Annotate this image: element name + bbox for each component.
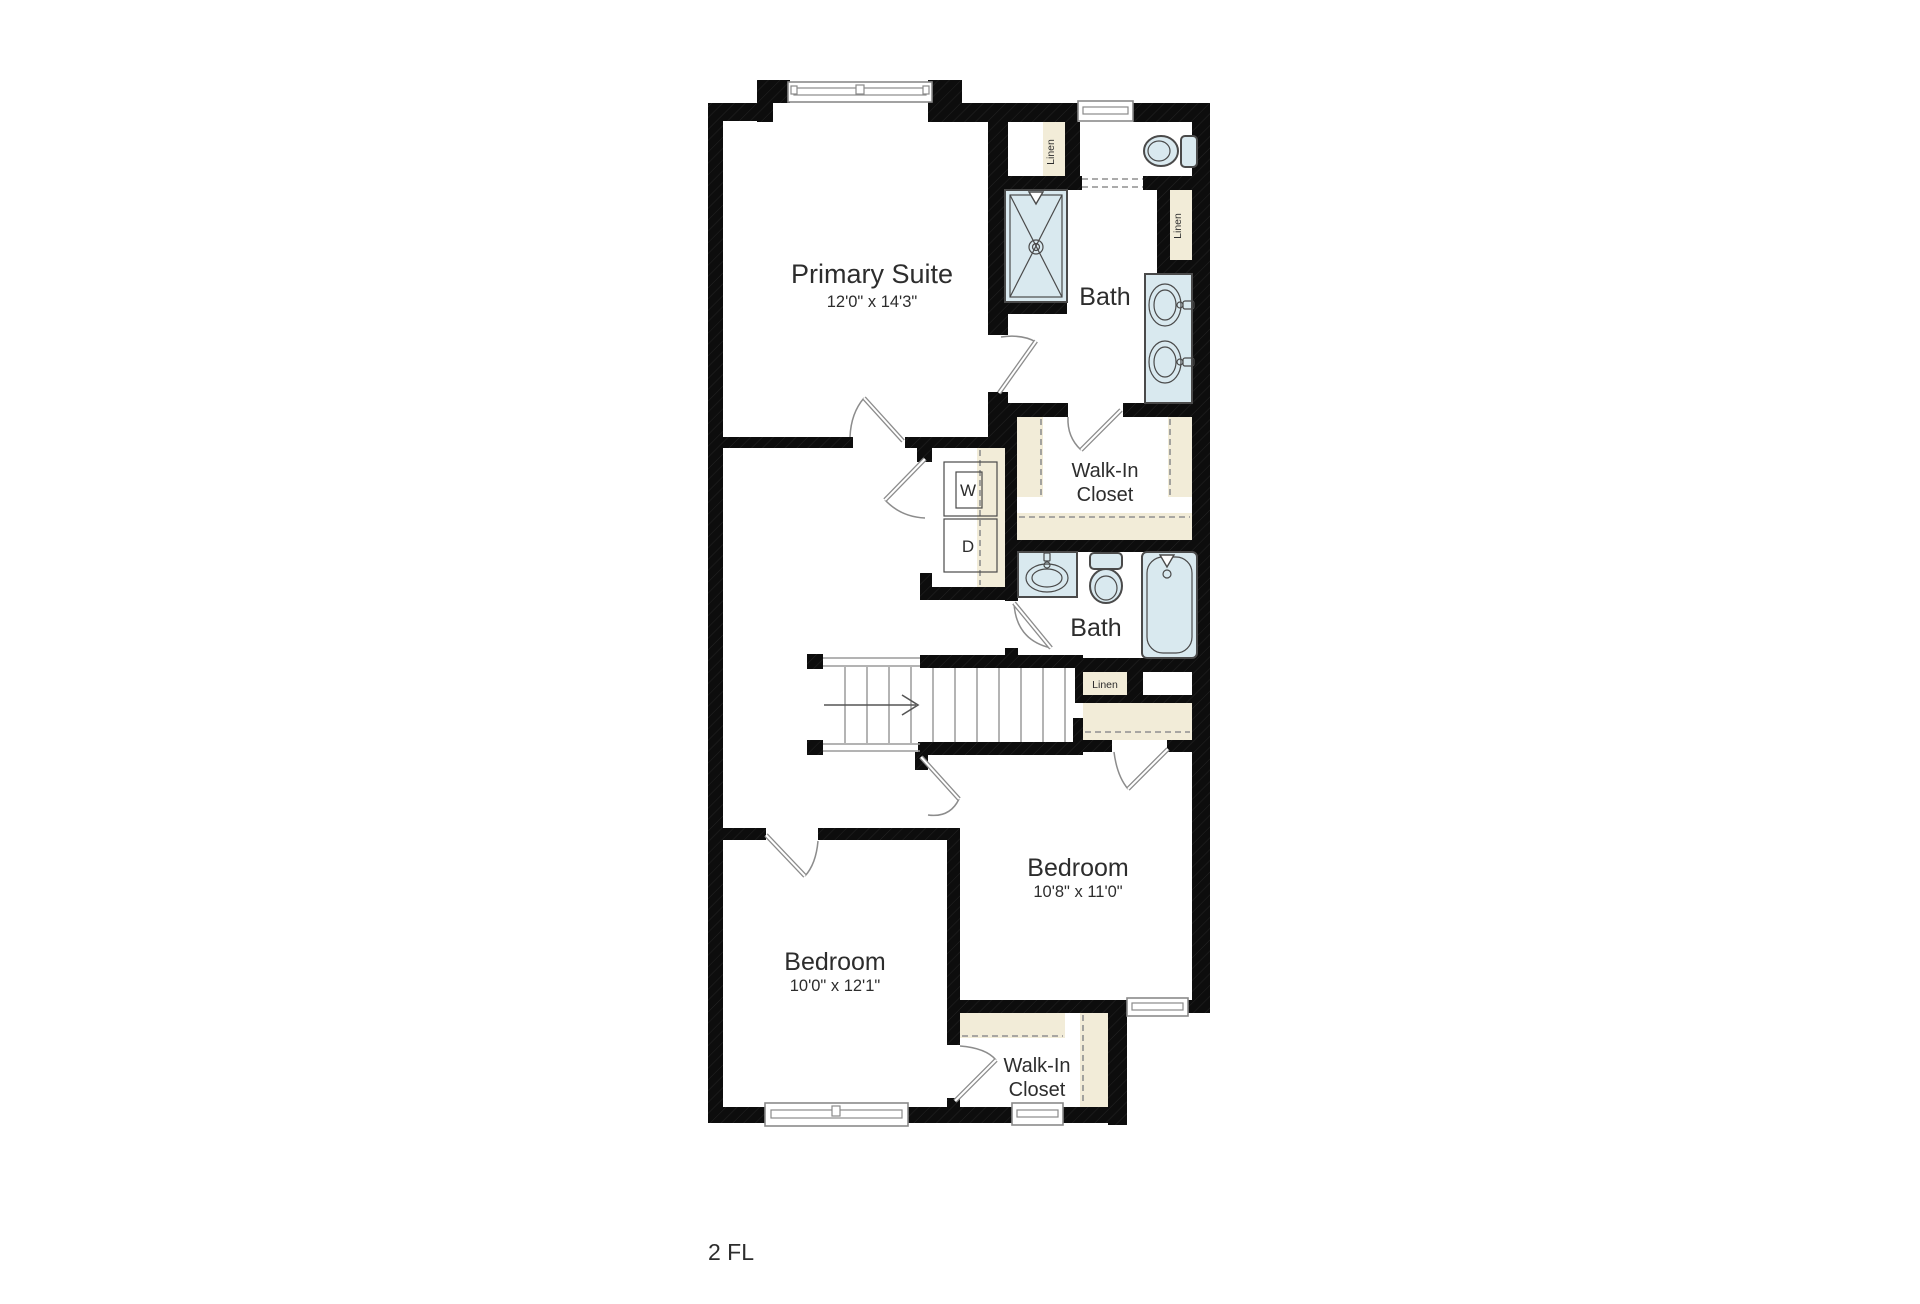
walk-in-closet-bottom-door xyxy=(955,1046,996,1101)
walk-in-closet-top-label-2: Closet xyxy=(1077,484,1134,506)
bedroom-right-dims: 10'8" x 11'0" xyxy=(1033,883,1122,901)
bath-mid-door xyxy=(1014,603,1051,648)
shower xyxy=(1005,190,1067,302)
sink-mid xyxy=(1018,552,1077,597)
primary-bath-door xyxy=(999,336,1036,393)
walk-in-closet-top-label-1: Walk-In xyxy=(1071,460,1138,482)
bedroom-left-door xyxy=(766,835,818,876)
staircase xyxy=(807,654,1065,755)
bedroom-left-window xyxy=(765,1103,908,1126)
bath-mid-label: Bath xyxy=(1070,614,1121,642)
double-vanity xyxy=(1145,274,1194,403)
walk-in-closet-bottom-label-1: Walk-In xyxy=(1003,1055,1070,1077)
washer-label: W xyxy=(960,481,976,500)
floor-plan-page: Primary Suite 12'0" x 14'3" Bath Bath Wa… xyxy=(0,0,1920,1304)
linen-bath-right-label: Linen xyxy=(1172,213,1184,239)
bathtub xyxy=(1142,552,1197,658)
floor-level-label: 2 FL xyxy=(708,1239,754,1265)
bedroom-left-dims: 10'0" x 12'1" xyxy=(790,977,881,995)
toilet-top xyxy=(1144,136,1197,167)
bedroom-right-window xyxy=(1127,998,1188,1016)
stair-hall-door xyxy=(921,757,959,815)
cased-opening xyxy=(1082,176,1143,190)
dryer-label: D xyxy=(962,537,974,556)
toilet-mid xyxy=(1090,553,1122,603)
bedroom-right-door xyxy=(1114,749,1168,789)
laundry-closet-door xyxy=(885,459,925,518)
primary-suite-dims: 12'0" x 14'3" xyxy=(827,293,918,311)
primary-suite-door xyxy=(850,398,903,441)
walk-in-closet-top-door xyxy=(1068,410,1121,450)
linen-hall-label: Linen xyxy=(1092,679,1118,691)
bedroom-left-label: Bedroom xyxy=(784,948,885,976)
laundry-cabinet-panel xyxy=(977,448,1007,587)
walk-in-closet-bottom-label-2: Closet xyxy=(1009,1079,1066,1101)
bath-window xyxy=(1078,101,1133,121)
bath-top-label: Bath xyxy=(1079,283,1130,311)
bedroom-right-label: Bedroom xyxy=(1027,854,1128,882)
linen-top-left-label: Linen xyxy=(1045,139,1057,165)
floor-plan-drawing: Primary Suite 12'0" x 14'3" Bath Bath Wa… xyxy=(0,0,1920,1304)
primary-suite-label: Primary Suite xyxy=(791,259,953,289)
hall-closet-shelf xyxy=(1083,703,1192,740)
closet-window xyxy=(1012,1103,1063,1125)
primary-suite-window xyxy=(788,82,932,102)
stair-direction-arrow xyxy=(824,695,918,715)
